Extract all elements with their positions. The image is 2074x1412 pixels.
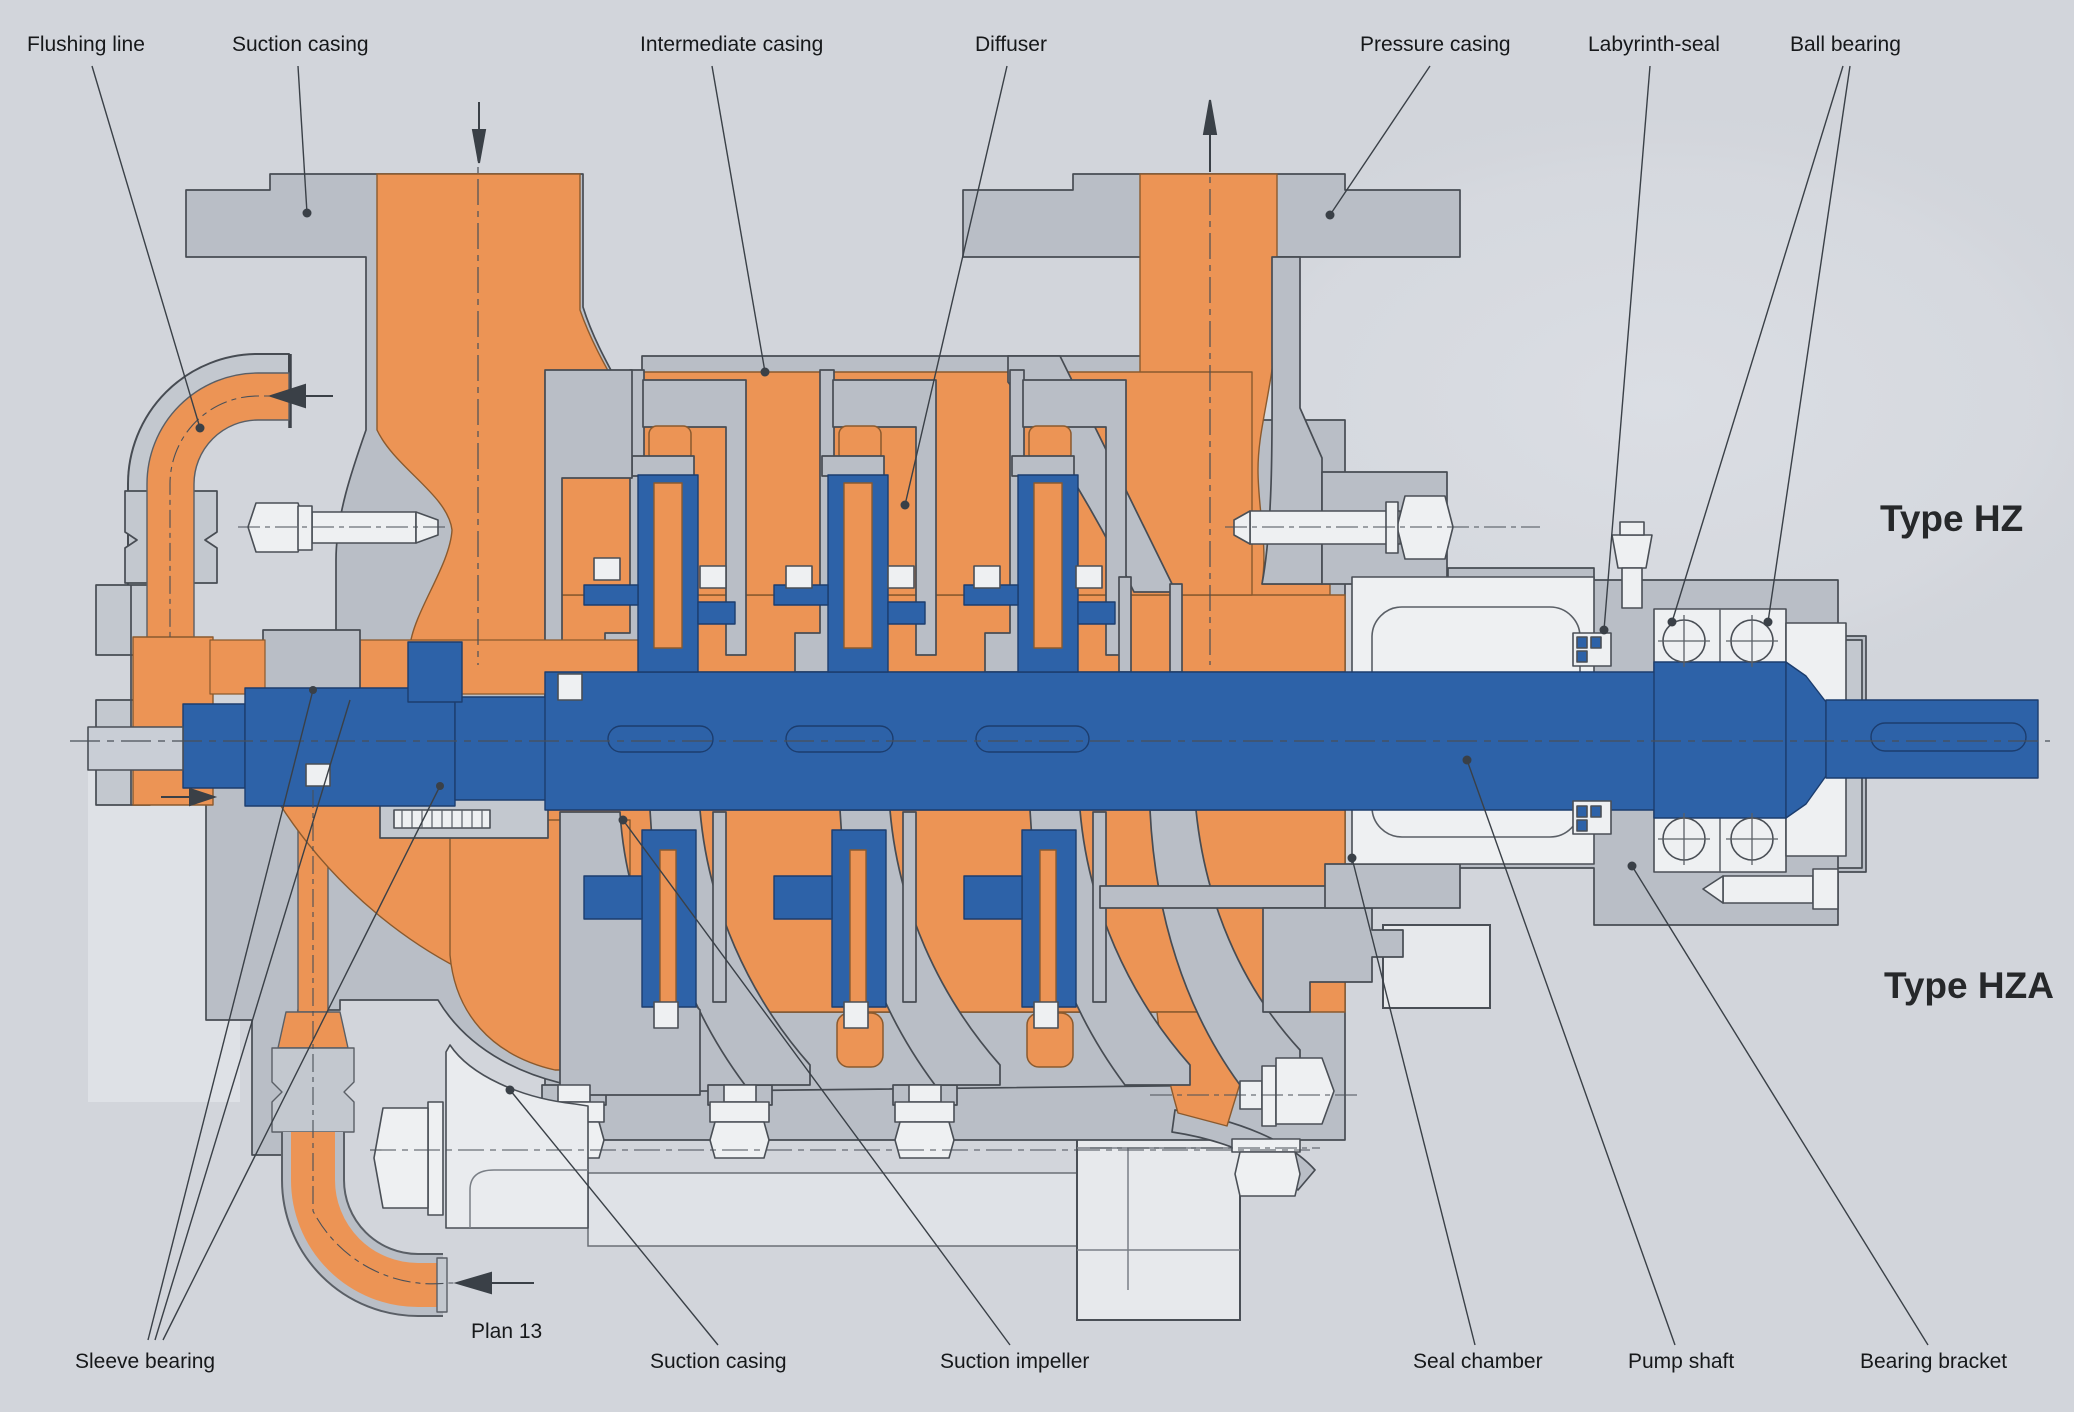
svg-text:Suction casing: Suction casing	[232, 33, 369, 56]
svg-text:Suction casing: Suction casing	[650, 1350, 787, 1373]
svg-text:Type HZA: Type HZA	[1884, 965, 2054, 1006]
svg-text:Intermediate casing: Intermediate casing	[640, 33, 823, 56]
svg-text:Ball bearing: Ball bearing	[1790, 33, 1901, 56]
svg-text:Pressure casing: Pressure casing	[1360, 33, 1511, 56]
svg-text:Plan 13: Plan 13	[471, 1320, 542, 1343]
svg-text:Seal chamber: Seal chamber	[1413, 1350, 1543, 1373]
svg-text:Suction impeller: Suction impeller	[940, 1350, 1089, 1373]
svg-text:Pump shaft: Pump shaft	[1628, 1350, 1734, 1373]
svg-text:Diffuser: Diffuser	[975, 33, 1047, 56]
svg-text:Flushing line: Flushing line	[27, 33, 145, 56]
svg-text:Sleeve bearing: Sleeve bearing	[75, 1350, 215, 1373]
svg-text:Type HZ: Type HZ	[1880, 498, 2023, 539]
svg-text:Labyrinth-seal: Labyrinth-seal	[1588, 33, 1720, 56]
svg-text:Bearing bracket: Bearing bracket	[1860, 1350, 2007, 1373]
